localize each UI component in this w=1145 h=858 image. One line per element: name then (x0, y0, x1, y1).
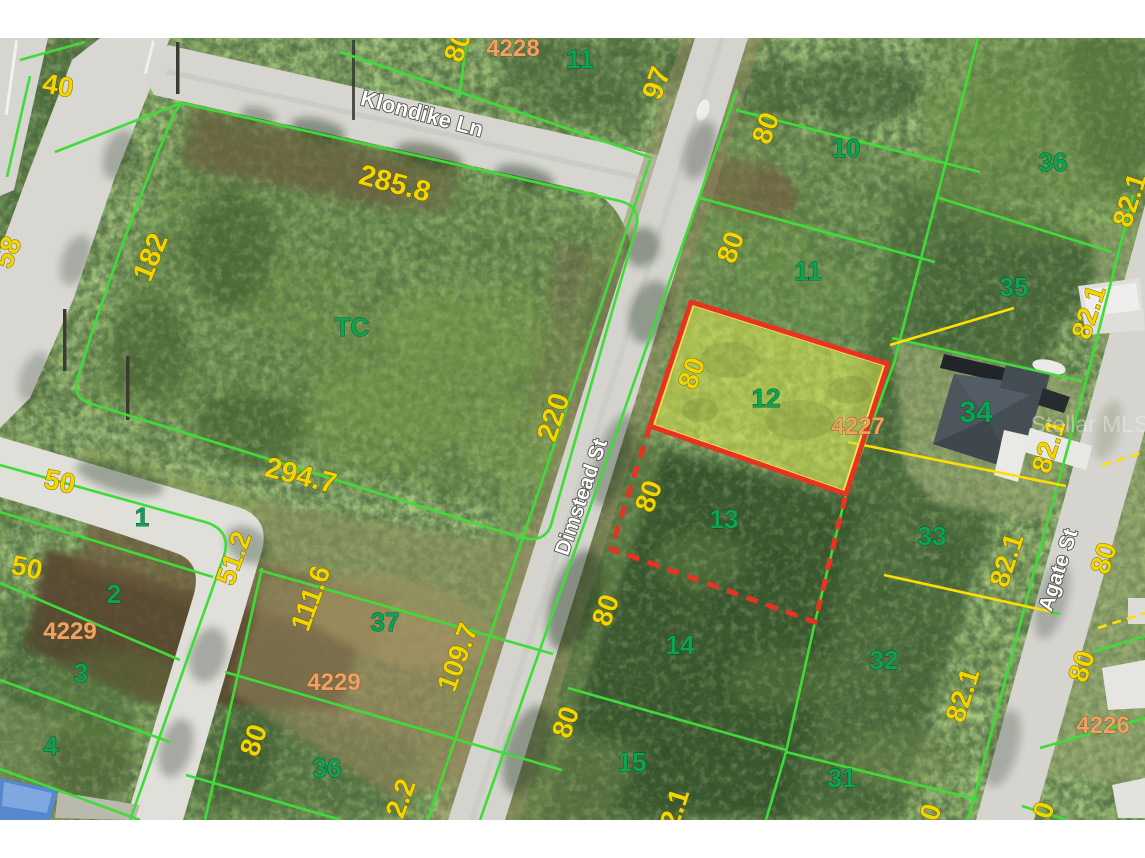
svg-text:11: 11 (566, 44, 594, 74)
svg-text:50: 50 (8, 549, 45, 586)
svg-text:4228: 4228 (486, 35, 539, 62)
svg-text:34: 34 (959, 396, 993, 429)
svg-text:4: 4 (44, 731, 59, 761)
svg-text:1: 1 (135, 502, 149, 532)
svg-text:4229: 4229 (43, 618, 96, 645)
svg-text:3: 3 (74, 658, 88, 688)
svg-text:15: 15 (618, 747, 647, 777)
svg-text:50: 50 (41, 463, 78, 500)
svg-text:36: 36 (1039, 147, 1068, 177)
svg-text:37: 37 (371, 607, 400, 637)
svg-text:33: 33 (918, 521, 947, 551)
svg-text:13: 13 (710, 504, 739, 534)
svg-text:4229: 4229 (307, 669, 360, 696)
svg-text:11: 11 (794, 256, 822, 286)
svg-text:4226: 4226 (1076, 712, 1129, 739)
svg-text:4227: 4227 (831, 413, 884, 440)
svg-text:Stellar MLS: Stellar MLS (1031, 411, 1145, 437)
svg-text:40: 40 (40, 68, 76, 104)
svg-text:2: 2 (107, 579, 121, 609)
svg-text:36: 36 (313, 753, 342, 783)
svg-text:14: 14 (666, 630, 695, 660)
svg-text:31: 31 (828, 763, 857, 793)
svg-text:12: 12 (752, 383, 781, 413)
svg-text:32: 32 (870, 645, 899, 675)
svg-text:TC: TC (335, 312, 370, 342)
svg-text:35: 35 (1000, 272, 1029, 302)
svg-text:10: 10 (832, 133, 861, 163)
